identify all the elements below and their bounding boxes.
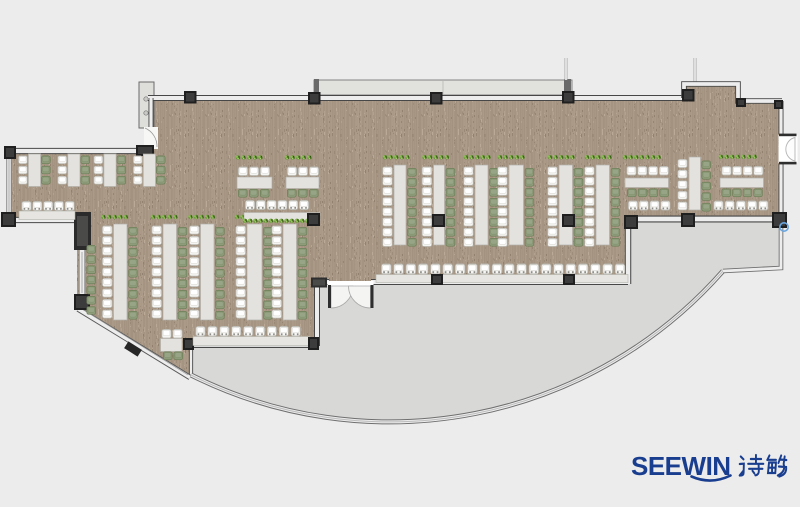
svg-text:SEEWIN: SEEWIN xyxy=(631,451,731,481)
